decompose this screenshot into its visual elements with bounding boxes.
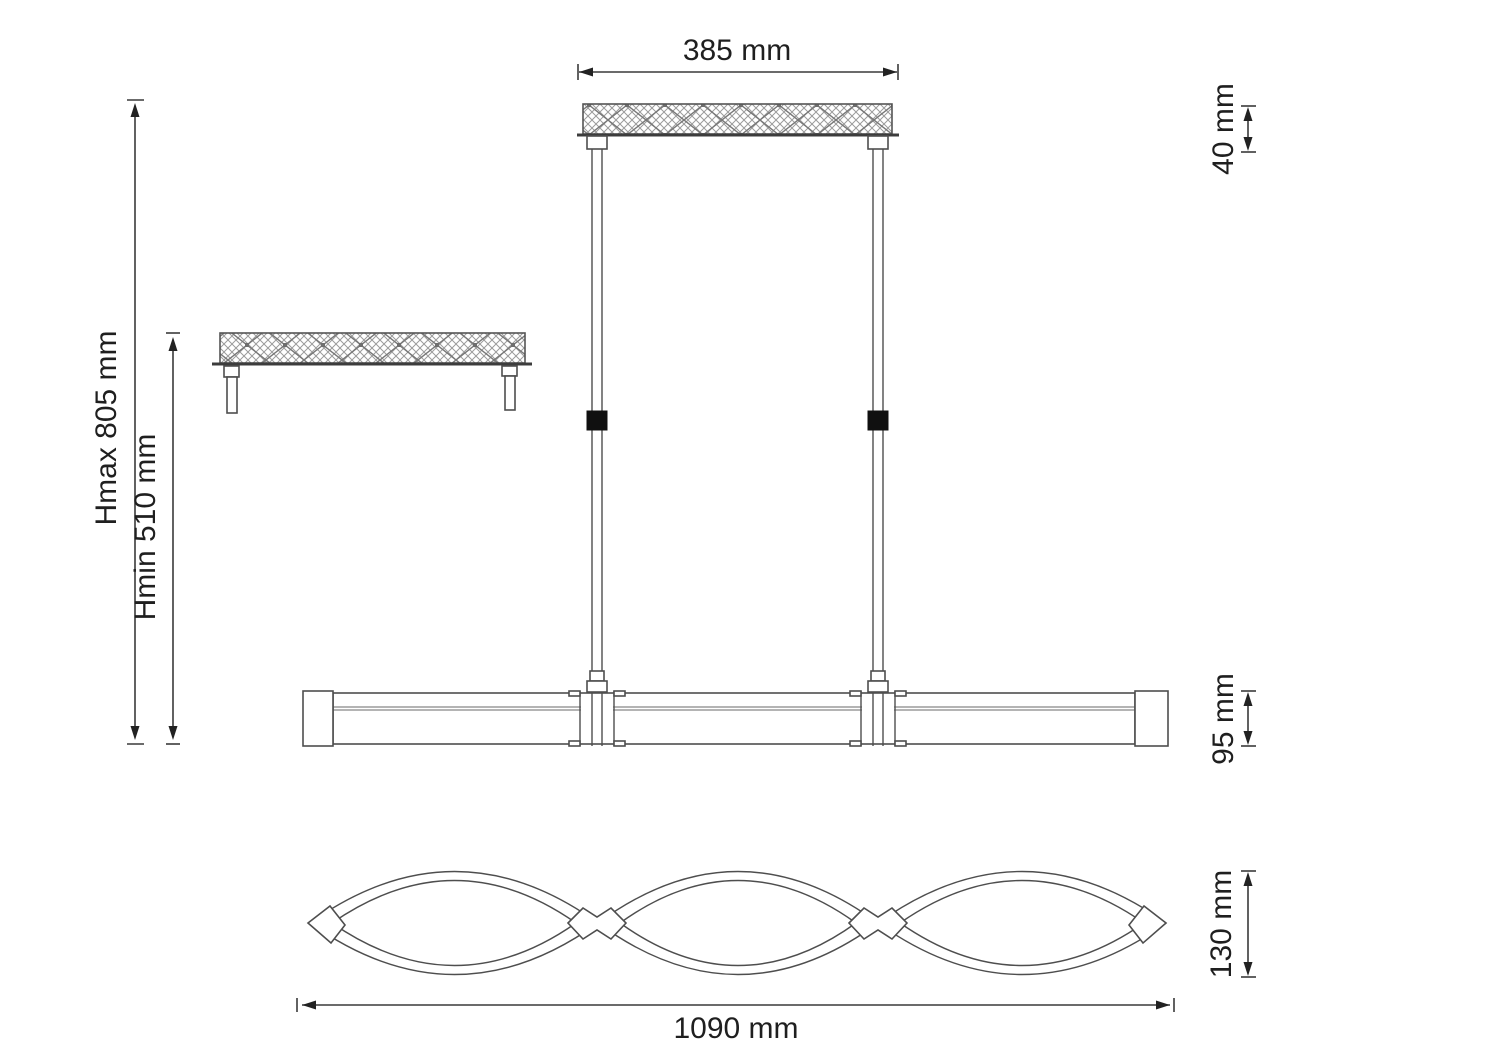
lens2-inner-bottom (620, 923, 856, 966)
bowtie-connector-left (568, 908, 626, 939)
dim-hmax: Hmax 805 mm (90, 100, 144, 744)
bracket-tab (850, 741, 861, 746)
bowtie-connector-right (849, 908, 907, 939)
bracket-tab (895, 741, 906, 746)
arrowhead-down-icon (1244, 962, 1253, 976)
rod-top-collar-left (587, 136, 607, 149)
arrowhead-left-icon (579, 68, 593, 77)
fixture-side-view (303, 691, 1168, 746)
dim-hmax-label: Hmax 805 mm (90, 330, 123, 525)
canopy-front-view (577, 104, 899, 149)
tip-cap-right (1129, 906, 1166, 943)
arrowhead-up-icon (1244, 692, 1253, 706)
arrowhead-up-icon (1244, 107, 1253, 121)
dim-canopy-height: 40 mm (1207, 83, 1256, 175)
dim-body-depth: 130 mm (1205, 870, 1256, 978)
bracket-left-mask (581, 694, 613, 743)
arrowhead-up-icon (131, 103, 140, 117)
rod-socket-left (587, 681, 607, 692)
arrowhead-up-icon (1244, 872, 1253, 886)
dim-canopy-height-label: 40 mm (1207, 83, 1240, 175)
dim-canopy-width: 385 mm (578, 34, 898, 80)
technical-drawing-canvas: 385 mm 40 mm Hmax 805 mm (0, 0, 1500, 1060)
end-cap-right (1135, 691, 1168, 746)
lens3-inner-top (900, 881, 1144, 924)
lens3-outer-top (878, 872, 1166, 924)
rod-ferrule-left (590, 671, 604, 681)
arrowhead-down-icon (1244, 137, 1253, 151)
canopy-side-body (220, 333, 525, 363)
lens2-inner-top (620, 881, 856, 924)
rod-socket-right (868, 681, 888, 692)
rod-top-collar-right (868, 136, 888, 149)
arrowhead-right-icon (883, 68, 897, 77)
dim-body-length: 1090 mm (297, 998, 1174, 1045)
pendant-lamp-dimension-drawing: 385 mm 40 mm Hmax 805 mm (0, 0, 1500, 1060)
rod-stub-left (227, 377, 237, 413)
lens1-outer-bottom (310, 923, 598, 975)
lens1-inner-bottom (332, 923, 576, 966)
arrowhead-right-icon (1156, 1001, 1170, 1010)
fixture-top-view (308, 872, 1166, 975)
rod-stub-right (505, 376, 515, 410)
lens1-outer-top (310, 872, 598, 924)
canopy-side-view (212, 333, 532, 413)
bracket-tab (614, 741, 625, 746)
bracket-tab (569, 691, 580, 696)
dim-body-height-label: 95 mm (1207, 673, 1240, 765)
rod-stub-collar-left (224, 366, 239, 377)
dim-body-height: 95 mm (1207, 673, 1256, 765)
lens3-outer-bottom (878, 923, 1166, 975)
dim-hmin-label: Hmin 510 mm (129, 434, 162, 621)
lens2-outer-bottom (598, 923, 878, 975)
canopy-body (583, 104, 892, 134)
dim-canopy-width-label: 385 mm (683, 34, 791, 67)
bracket-tab (850, 691, 861, 696)
arrowhead-up-icon (169, 337, 178, 351)
lens1-inner-top (332, 881, 576, 924)
height-adjuster-left (587, 411, 607, 430)
arrowhead-down-icon (169, 726, 178, 740)
bracket-tab (614, 691, 625, 696)
arrowhead-left-icon (302, 1001, 316, 1010)
tip-cap-left (308, 906, 345, 943)
bracket-right-mask (862, 694, 894, 743)
dim-body-depth-label: 130 mm (1205, 870, 1238, 978)
fixture-body (333, 693, 1135, 744)
arrowhead-down-icon (1244, 731, 1253, 745)
dim-body-length-label: 1090 mm (673, 1012, 798, 1045)
suspension-rods (587, 149, 888, 692)
lens3-inner-bottom (900, 923, 1144, 966)
bracket-tab (895, 691, 906, 696)
height-adjuster-right (868, 411, 888, 430)
rod-ferrule-right (871, 671, 885, 681)
dim-hmin: Hmin 510 mm (129, 333, 180, 744)
arrowhead-down-icon (131, 726, 140, 740)
bracket-tab (569, 741, 580, 746)
rod-stub-collar-right (502, 366, 517, 376)
lens2-outer-top (598, 872, 878, 924)
end-cap-left (303, 691, 333, 746)
